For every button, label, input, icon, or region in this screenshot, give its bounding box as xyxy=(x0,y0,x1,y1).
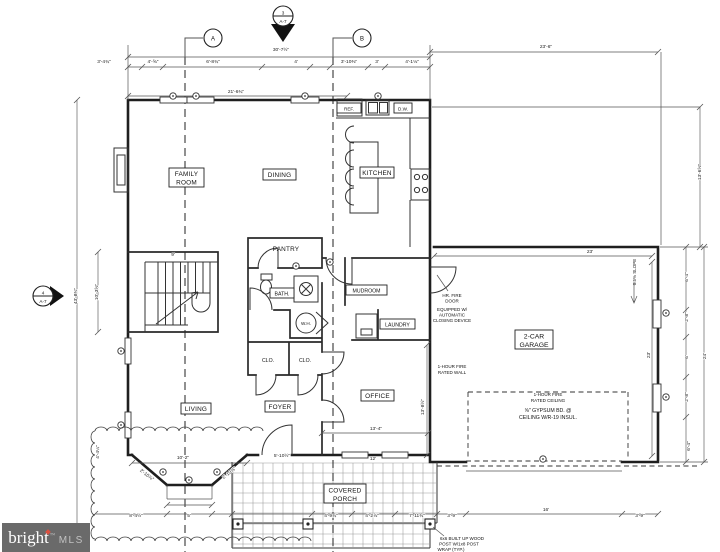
svg-text:EQUIPPED W/: EQUIPPED W/ xyxy=(437,307,468,312)
note-fire-ceiling: 1-HOUR FIRE RATED CEILING ⅝" GYPSUM BD. … xyxy=(519,392,577,421)
dimension-label: 4'-4¼" xyxy=(95,445,101,459)
window-tag-dot xyxy=(195,95,197,97)
label-covered-porch: COVERED PORCH xyxy=(324,484,366,503)
label-closet-1: CLO. xyxy=(262,358,274,364)
note-gypsum: ⅝" GYPSUM BD. @ xyxy=(525,408,572,414)
washer xyxy=(356,314,377,338)
section-marker-3-a7: 3 A-7 xyxy=(271,6,295,42)
window-tag-dot xyxy=(665,312,667,314)
note-post: 6x6 BUILT UP WOOD POST W/1x8 POST WRAP (… xyxy=(433,527,485,552)
svg-text:DOOR: DOOR xyxy=(445,299,459,304)
dimension-label: 4'-9¾" xyxy=(324,513,338,519)
window-tag-dot xyxy=(120,350,122,352)
dimension-label: 23' xyxy=(646,352,652,358)
window xyxy=(653,384,661,412)
dimension-label: 3'-10⅜" xyxy=(341,59,358,65)
dimension-label: 23' xyxy=(587,249,593,255)
brightmls-logo: bright™ xyxy=(8,529,55,546)
staircase xyxy=(145,262,218,332)
grid-marker-b: B xyxy=(353,29,371,47)
window xyxy=(382,452,408,458)
svg-text:A-7: A-7 xyxy=(39,299,47,304)
window-tag-dot xyxy=(329,261,331,263)
svg-text:CEILING W/R-19 INSUL.: CEILING W/R-19 INSUL. xyxy=(519,415,577,421)
window-tag-dot xyxy=(216,471,218,473)
dimension-label: 2'-8" xyxy=(684,312,690,322)
svg-text:BATH.: BATH. xyxy=(275,292,290,298)
note-fire-door: HR. FIRE DOOR EQUIPPED W/ AUTOMATIC CLOS… xyxy=(433,275,471,323)
label-laundry: LAUNDRY xyxy=(380,319,415,329)
dimension-label: 30'-7½" xyxy=(273,46,290,53)
section-markers: A B 3 A-7 4 A-7 xyxy=(33,6,371,306)
svg-text:RATED CEILING: RATED CEILING xyxy=(531,398,566,403)
dimension-label: 10'-2" xyxy=(177,455,190,461)
window-tag-dot xyxy=(665,396,667,398)
dimension-label: 8'-4½" xyxy=(129,512,143,519)
window-tag-dot xyxy=(188,479,190,481)
dimension-label: 43'-8¾" xyxy=(73,288,79,305)
svg-text:A-7: A-7 xyxy=(279,19,287,24)
label-mudroom: MUDROOM xyxy=(346,285,387,295)
dimension-label: 7'-11¾" xyxy=(409,513,425,519)
dimension-label: 3' xyxy=(375,59,379,65)
svg-text:A: A xyxy=(211,37,215,43)
svg-text:ROOM: ROOM xyxy=(176,180,197,187)
trademark-symbol: ™ xyxy=(50,533,55,538)
dimension-lines xyxy=(74,45,708,548)
floor-plan-drawing: 30'-7½"23'-6"3'-4¾"4'-⅝"6'-8¾"4'3'-10⅜"3… xyxy=(0,0,720,552)
floor-plan-page: 30'-7½"23'-6"3'-4¾"4'-⅝"6'-8¾"4'3'-10⅜"3… xyxy=(0,0,720,552)
label-foyer: FOYER xyxy=(265,401,295,412)
svg-text:LAUNDRY: LAUNDRY xyxy=(385,323,410,329)
svg-text:FOYER: FOYER xyxy=(268,404,291,411)
label-living: LIVING xyxy=(181,403,211,414)
door-swings xyxy=(250,248,456,455)
svg-text:GARAGE: GARAGE xyxy=(519,342,549,349)
dimension-label: 12' xyxy=(370,456,376,462)
window xyxy=(125,338,131,364)
dimension-label: 4'-⅝" xyxy=(148,59,159,65)
window xyxy=(342,452,368,458)
grid-marker-a: A xyxy=(204,29,222,47)
brightmls-watermark: bright™ MLS xyxy=(2,523,90,552)
dimension-label: 3'-9" xyxy=(447,513,457,519)
svg-text:FAMILY: FAMILY xyxy=(175,171,199,178)
dimension-label: 6'-4" xyxy=(684,272,690,282)
dimension-label: 5' xyxy=(187,513,191,519)
label-kitchen: KITCHEN xyxy=(360,167,394,178)
svg-text:1-HOUR FIRE: 1-HOUR FIRE xyxy=(534,392,563,397)
label-dining: DINING xyxy=(263,169,296,180)
window-tag-dot xyxy=(542,458,544,460)
dimension-label: 23'-6" xyxy=(540,44,553,50)
dimension-label: 4'-2⅞" xyxy=(365,513,379,519)
window-tag-dot xyxy=(295,265,297,267)
svg-text:6x6 BUILT UP WOOD: 6x6 BUILT UP WOOD xyxy=(440,536,485,541)
bath-fixtures xyxy=(261,274,378,338)
dimension-label: 6' xyxy=(684,355,690,359)
label-bath: BATH. xyxy=(270,288,294,298)
window-tag-dot xyxy=(120,424,122,426)
dimension-label: 16' xyxy=(543,507,549,513)
svg-text:COVERED: COVERED xyxy=(328,488,361,495)
svg-text:DINING: DINING xyxy=(268,172,292,179)
label-dishwasher: D.W. xyxy=(394,103,412,113)
svg-text:PORCH: PORCH xyxy=(333,496,357,503)
svg-text:REF.: REF. xyxy=(344,107,354,112)
window xyxy=(187,97,214,103)
porch-grid xyxy=(233,463,436,547)
window-tag-dot xyxy=(162,471,164,473)
stair-direction-arrow xyxy=(156,292,198,324)
dimension-label: 13'-8½" xyxy=(419,399,426,416)
svg-text:KITCHEN: KITCHEN xyxy=(362,170,392,177)
dimension-label: 2'-8" xyxy=(684,392,690,402)
svg-text:CLOSING DEVICE: CLOSING DEVICE xyxy=(433,318,471,323)
grade-scallop-line xyxy=(95,537,311,541)
dimension-label: 5'-10½" xyxy=(274,452,291,459)
svg-text:OFFICE: OFFICE xyxy=(365,393,390,400)
dimension-label: 3'-9" xyxy=(635,513,645,519)
label-office: OFFICE xyxy=(361,390,394,401)
svg-text:B: B xyxy=(360,37,364,43)
svg-text:4: 4 xyxy=(42,291,45,296)
svg-text:3: 3 xyxy=(282,11,285,16)
section-marker-4-a7: 4 A-7 xyxy=(33,286,64,306)
window-tag-dot xyxy=(377,95,379,97)
dimension-label: 10'-3⅝" xyxy=(94,284,100,301)
dimension-label: 24' xyxy=(702,353,708,359)
svg-text:2-CAR: 2-CAR xyxy=(524,334,544,341)
svg-text:AUTOMATIC: AUTOMATIC xyxy=(439,313,466,318)
svg-text:RATED WALL: RATED WALL xyxy=(438,370,467,375)
label-garage: 2-CAR GARAGE xyxy=(515,330,553,349)
label-water-heater: W.H. xyxy=(301,321,311,326)
svg-text:0.5% SLOPE: 0.5% SLOPE xyxy=(632,259,637,286)
svg-text:WRAP (TYP.): WRAP (TYP.) xyxy=(437,547,465,552)
plan-notes: HR. FIRE DOOR EQUIPPED W/ AUTOMATIC CLOS… xyxy=(433,259,637,552)
brightmls-mls-text: MLS xyxy=(59,535,84,546)
dimension-label: 6'-4" xyxy=(686,441,692,451)
note-fire-wall: 1-HOUR FIRE RATED WALL xyxy=(438,364,467,375)
range xyxy=(411,169,430,200)
window-tag-dot xyxy=(172,95,174,97)
room-labels: FAMILY ROOM DINING KITCHEN PANTRY BATH. … xyxy=(169,103,553,503)
dimension-label: 21'-6¾" xyxy=(228,89,245,95)
svg-text:1-HOUR FIRE: 1-HOUR FIRE xyxy=(438,364,467,369)
dimension-label: 4'-1⅛" xyxy=(405,59,419,65)
svg-text:D.W.: D.W. xyxy=(398,107,408,112)
label-family-room: FAMILY ROOM xyxy=(169,168,204,187)
dimension-label: 2'-10⅞" xyxy=(138,468,155,483)
dimension-label: 9' xyxy=(171,252,175,258)
svg-text:POST W/1x8 POST: POST W/1x8 POST xyxy=(439,542,479,547)
dimension-label: 6'-8¾" xyxy=(206,59,220,65)
dimension-label: 4' xyxy=(294,59,298,65)
dimension-label: 13'-4" xyxy=(370,426,383,432)
dimension-label: 3'-4¾" xyxy=(97,59,111,65)
window-tag-dot xyxy=(304,95,306,97)
label-closet-2: CLO. xyxy=(299,358,311,364)
window xyxy=(653,300,661,328)
label-pantry: PANTRY xyxy=(273,246,300,253)
window xyxy=(125,412,131,438)
label-refrigerator: REF. xyxy=(337,103,361,113)
grade-scallop-line xyxy=(91,431,95,539)
svg-text:MUDROOM: MUDROOM xyxy=(353,289,381,295)
svg-text:HR. FIRE: HR. FIRE xyxy=(442,293,461,298)
note-slope: 0.5% SLOPE xyxy=(631,259,637,303)
svg-text:LIVING: LIVING xyxy=(185,406,207,413)
dimension-label: 13'-6⅝" xyxy=(697,164,703,181)
